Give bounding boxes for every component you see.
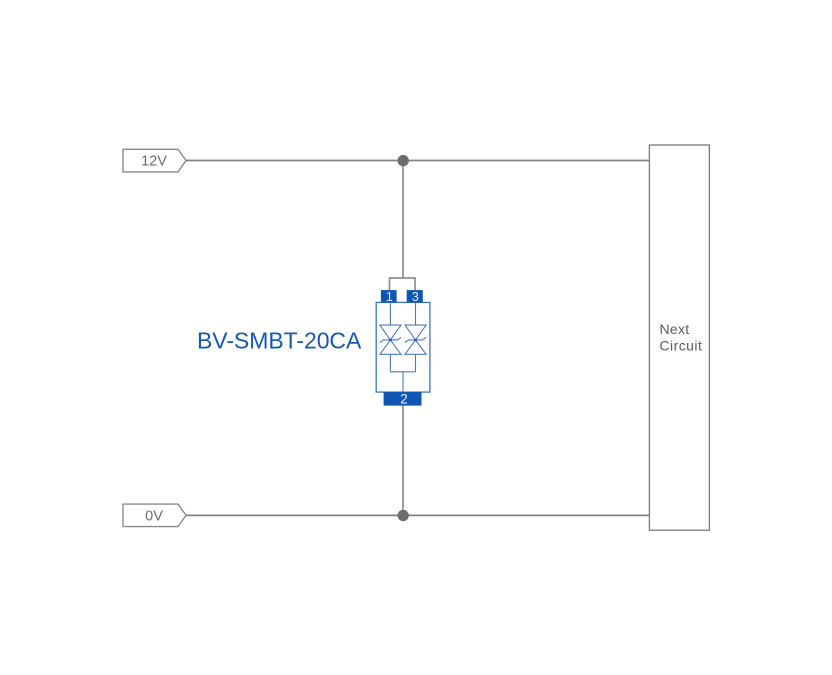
svg-text:2: 2 bbox=[400, 392, 408, 407]
svg-text:Next: Next bbox=[660, 321, 690, 337]
svg-text:3: 3 bbox=[412, 290, 419, 304]
svg-text:Circuit: Circuit bbox=[660, 337, 703, 353]
svg-text:BV-SMBT-20CA: BV-SMBT-20CA bbox=[197, 328, 362, 354]
svg-text:12V: 12V bbox=[141, 154, 167, 170]
svg-text:0V: 0V bbox=[145, 508, 163, 524]
svg-text:1: 1 bbox=[386, 290, 393, 304]
